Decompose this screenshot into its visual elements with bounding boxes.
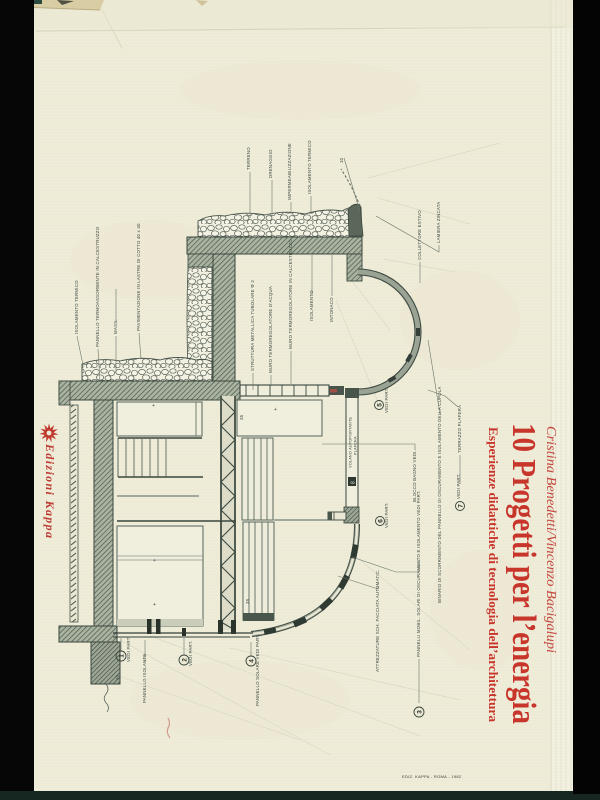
svg-text:ISOLAMENTO: ISOLAMENTO — [309, 290, 314, 321]
svg-text:LAMIERA ZINCATA: LAMIERA ZINCATA — [436, 202, 441, 243]
svg-text:+: + — [153, 558, 156, 564]
svg-text:ISOLAMENTO TERMICO: ISOLAMENTO TERMICO — [307, 140, 312, 194]
svg-text:10: 10 — [339, 157, 344, 163]
svg-text:+: + — [274, 407, 277, 413]
svg-text:ISOLAMENTO TERMICO: ISOLAMENTO TERMICO — [74, 280, 79, 334]
svg-text:Cristina Benedetti/Vincenzo Ba: Cristina Benedetti/Vincenzo Bacigalupi — [544, 426, 559, 653]
svg-text:+: + — [152, 403, 155, 409]
svg-text:TERRAZZO PLAFERA: TERRAZZO PLAFERA — [457, 405, 462, 453]
svg-text:2: 2 — [181, 658, 188, 662]
svg-text:PANNELLI MOBIL. SOLARI DI OSCU: PANNELLI MOBIL. SOLARI DI OSCURAMENTO E … — [416, 490, 421, 657]
svg-text:ATTREZZATURE SCH. FACCIATA AUT: ATTREZZATURE SCH. FACCIATA AUTOMATIC. — [375, 569, 380, 672]
svg-text:99: 99 — [115, 674, 120, 680]
svg-text:BINARIO DI SCORRIMENTO DEL PAN: BINARIO DI SCORRIMENTO DEL PANNELLO DI O… — [437, 387, 442, 603]
svg-text:+: + — [153, 602, 156, 608]
svg-text:MURO TERMOREGOLATORE D'ACQUA: MURO TERMOREGOLATORE D'ACQUA — [268, 286, 273, 373]
svg-text:VEDI PART.: VEDI PART. — [126, 636, 131, 662]
svg-text:VEDI PART.: VEDI PART. — [384, 387, 389, 413]
svg-text:VEDI PART.: VEDI PART. — [456, 473, 461, 499]
svg-text:PANNELLO SOLARE VEDI PART.: PANNELLO SOLARE VEDI PART. — [255, 634, 260, 706]
svg-text:MASS.: MASS. — [113, 319, 118, 334]
svg-text:35: 35 — [245, 598, 250, 604]
svg-text:PAVIMENTAZIONE IN LASTRE DI CO: PAVIMENTAZIONE IN LASTRE DI COTTO 40 x 4… — [136, 223, 141, 331]
svg-text:INTONACO: INTONACO — [329, 297, 334, 322]
svg-text:7: 7 — [457, 504, 464, 508]
svg-text:VOLANO AUTOPORTANTE: VOLANO AUTOPORTANTE — [349, 416, 353, 468]
svg-text:TERRENO: TERRENO — [246, 147, 251, 170]
svg-text:VEDI PART.: VEDI PART. — [384, 502, 389, 528]
svg-text:PANNELLO ISOLANTE: PANNELLO ISOLANTE — [142, 654, 147, 703]
svg-text:5: 5 — [376, 403, 383, 407]
svg-text:IMPERMEABILIZZAZIONE: IMPERMEABILIZZAZIONE — [287, 143, 292, 200]
svg-text:10 Progetti per l’energia: 10 Progetti per l’energia — [505, 423, 542, 724]
svg-text:MURO TERMOREGOLATORE IN CALCES: MURO TERMOREGOLATORE IN CALCESTRUZZO — [288, 239, 293, 349]
svg-text:PANNELLO TERMOASSORBENTE IN CA: PANNELLO TERMOASSORBENTE IN CALCESTRUZZO — [95, 226, 100, 347]
svg-text:COLLETTORE ESTIVO: COLLETTORE ESTIVO — [417, 210, 422, 260]
svg-text:6: 6 — [377, 519, 384, 523]
svg-text:35: 35 — [239, 414, 244, 420]
svg-text:STRUTTURA METALLICA TUBOLARE Φ: STRUTTURA METALLICA TUBOLARE Φ 2 — [250, 280, 255, 371]
svg-text:3: 3 — [416, 710, 423, 714]
svg-text:Esperienze didattiche di tecno: Esperienze didattiche di tecnologia dell… — [486, 427, 500, 723]
svg-text:8: 8 — [351, 481, 357, 484]
svg-text:EDIZ. KAPPA - ROMA - 1982: EDIZ. KAPPA - ROMA - 1982 — [402, 774, 462, 779]
svg-text:PLAFERA: PLAFERA — [354, 436, 358, 455]
svg-text:DRENAGGIO: DRENAGGIO — [268, 149, 273, 178]
svg-text:4: 4 — [248, 659, 255, 663]
svg-text:1: 1 — [118, 654, 125, 658]
